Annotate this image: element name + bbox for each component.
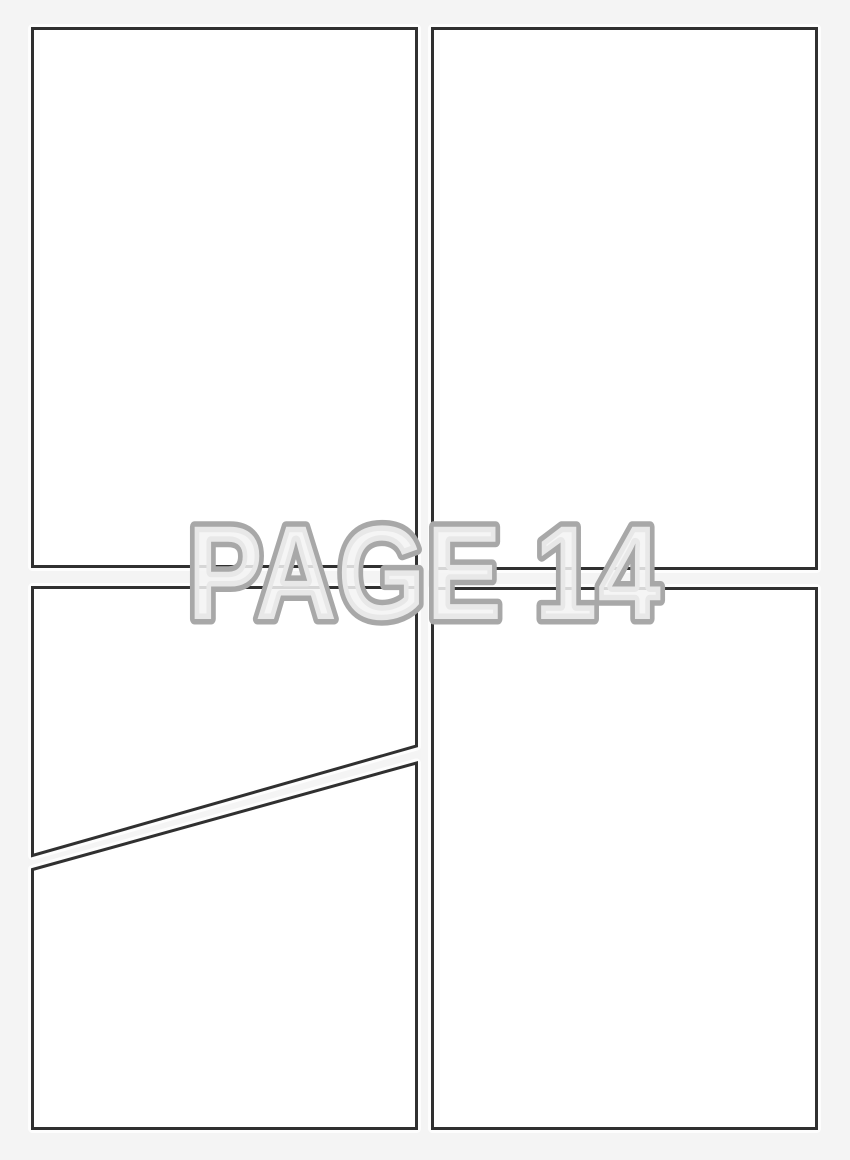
page-number-label: PAGE 14 [187,499,661,648]
panel-bottom-right [433,589,817,1129]
comic-page-canvas: PAGE 14 [0,0,850,1160]
comic-page-template: PAGE 14 [0,0,850,1160]
panel-top-left [33,29,417,567]
panel-top-right [433,29,817,569]
